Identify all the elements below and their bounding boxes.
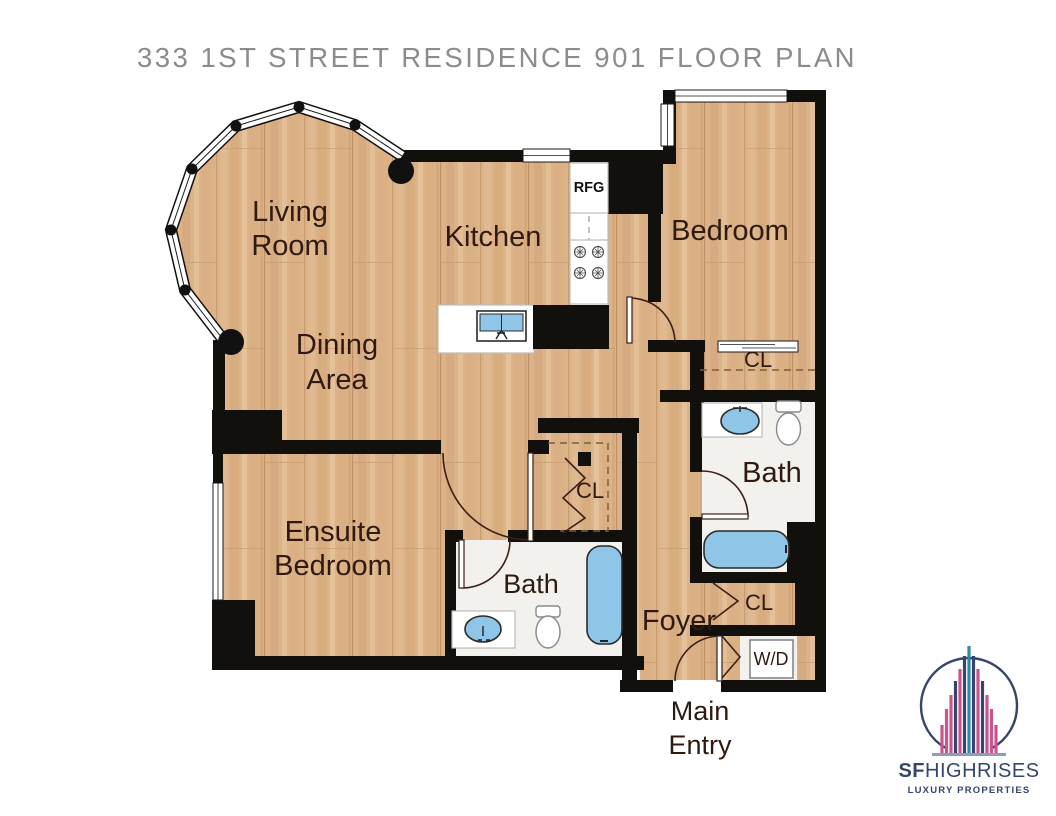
hall-closet-label: CL — [576, 478, 604, 503]
foyer-label: Foyer — [642, 605, 716, 637]
column-bottom — [218, 329, 244, 355]
living-room-label-1: Living — [252, 196, 328, 228]
washer-dryer: W/D — [750, 640, 793, 678]
kitchen-label: Kitchen — [445, 221, 542, 253]
ensuite-bath-sink — [452, 611, 515, 648]
main-bath-toilet — [776, 401, 801, 445]
page-title: 333 1ST STREET RESIDENCE 901 FLOOR PLAN — [137, 42, 857, 73]
ensuite-window — [213, 483, 223, 600]
bedroom-label: Bedroom — [671, 215, 789, 247]
living-room-label-2: Room — [251, 230, 328, 262]
floor-plan-page: 333 1ST STREET RESIDENCE 901 FLOOR PLAN — [0, 0, 1056, 816]
refrigerator: RFG — [570, 163, 608, 213]
dining-label-1: Dining — [296, 329, 378, 361]
floor-plan-canvas: 333 1ST STREET RESIDENCE 901 FLOOR PLAN — [0, 0, 1056, 816]
bedroom-closet-label: CL — [744, 347, 772, 372]
dining-label-2: Area — [306, 364, 368, 396]
foyer-closet-label: CL — [745, 590, 773, 615]
stove — [570, 240, 608, 304]
ensuite-label-2: Bedroom — [274, 550, 392, 582]
brand-logo: SFHIGHRISES LUXURY PROPERTIES — [898, 646, 1039, 796]
main-bath-label: Bath — [742, 457, 802, 489]
column-top — [388, 158, 414, 184]
logo-brand-light: HIGHRISES — [925, 760, 1040, 782]
logo-brand-name: SFHIGHRISES — [898, 760, 1039, 782]
main-entry-label-1: Main — [671, 696, 730, 726]
island-sink — [477, 311, 526, 341]
floor-plan: RFG — [166, 90, 827, 760]
washer-dryer-label: W/D — [754, 649, 789, 669]
main-bath-tub — [704, 531, 789, 568]
main-entry-label-2: Entry — [668, 730, 732, 760]
main-bath-sink — [702, 403, 762, 437]
bedroom-side-window — [661, 104, 674, 146]
kitchen-window — [523, 149, 570, 162]
logo-brand-bold: SF — [898, 760, 925, 782]
ensuite-bath-label: Bath — [503, 569, 559, 599]
ensuite-bath-toilet — [536, 606, 560, 648]
refrigerator-label: RFG — [574, 180, 605, 196]
bedroom-top-window — [675, 90, 787, 102]
ensuite-label-1: Ensuite — [285, 516, 382, 548]
ensuite-bath-tub — [587, 546, 622, 644]
logo-tagline: LUXURY PROPERTIES — [908, 785, 1031, 796]
